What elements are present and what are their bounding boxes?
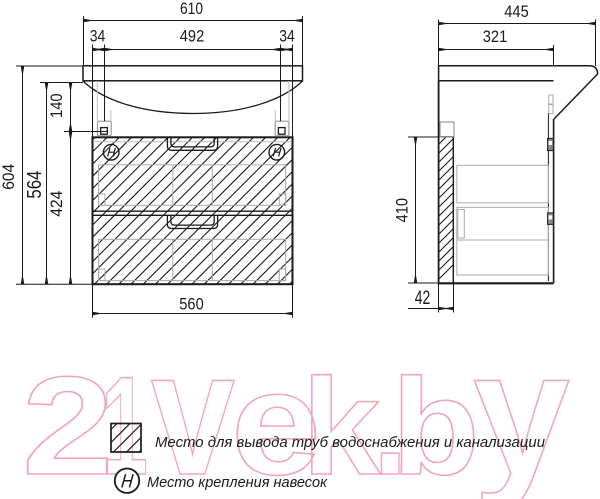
svg-text:140: 140 xyxy=(47,93,66,118)
svg-text:321: 321 xyxy=(483,27,508,46)
svg-text:424: 424 xyxy=(47,191,66,217)
svg-text:560: 560 xyxy=(179,295,204,314)
svg-text:610: 610 xyxy=(180,0,203,18)
svg-text:34: 34 xyxy=(279,27,295,46)
svg-text:492: 492 xyxy=(180,27,205,46)
svg-text:v: v xyxy=(151,314,235,499)
svg-text:Место крепления навесок: Место крепления навесок xyxy=(147,475,328,491)
svg-text:604: 604 xyxy=(0,164,18,190)
svg-text:42: 42 xyxy=(415,288,431,309)
svg-text:564: 564 xyxy=(23,171,46,199)
svg-text:34: 34 xyxy=(90,27,106,46)
svg-text:410: 410 xyxy=(393,198,412,223)
svg-text:Место для вывода труб водоснаб: Место для вывода труб водоснабжения и ка… xyxy=(155,435,545,451)
svg-text:445: 445 xyxy=(504,2,529,21)
svg-text:y: y xyxy=(473,314,570,499)
svg-text:b: b xyxy=(392,351,480,499)
